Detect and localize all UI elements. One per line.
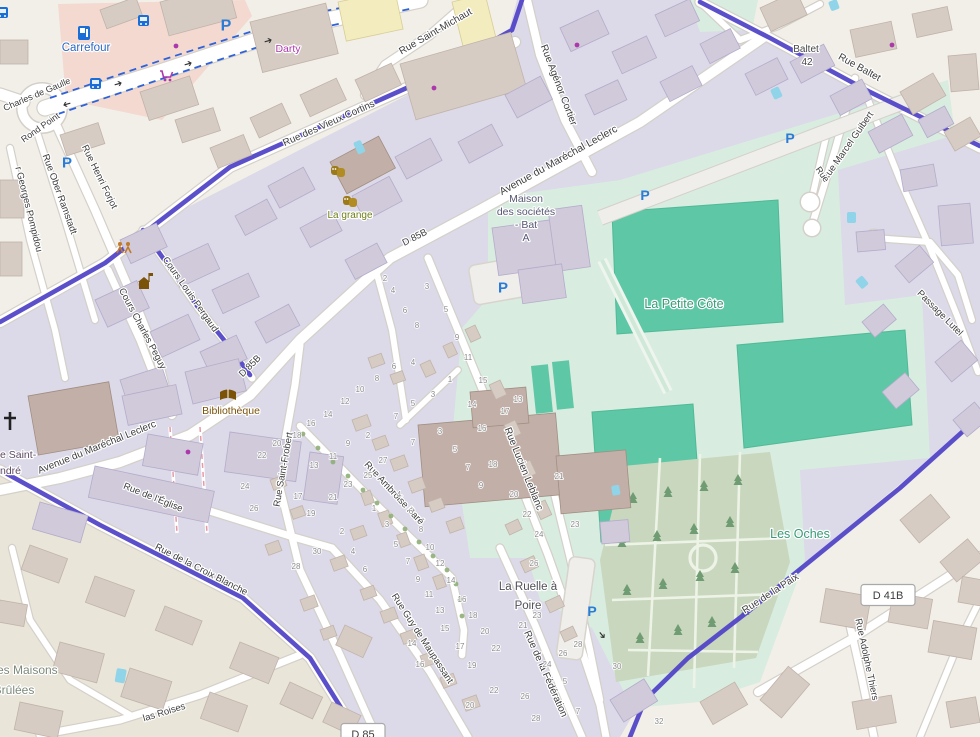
house-number: 3 bbox=[431, 390, 436, 399]
building bbox=[850, 21, 897, 57]
house-number: 20 bbox=[481, 627, 490, 636]
house-number: 22 bbox=[523, 510, 532, 519]
house-number: 30 bbox=[313, 547, 322, 556]
house-number: 5 bbox=[411, 399, 416, 408]
building bbox=[175, 108, 220, 143]
parking-icon: P bbox=[498, 279, 508, 296]
supermarket-cart-icon bbox=[169, 79, 172, 82]
house-number: 7 bbox=[406, 557, 411, 566]
parking-icon: P bbox=[587, 603, 596, 619]
house-number: 8 bbox=[419, 525, 424, 534]
house-number: 18 bbox=[469, 611, 478, 620]
place-label: Carrefour bbox=[62, 42, 111, 54]
house-number: 28 bbox=[532, 714, 541, 723]
house-number: 13 bbox=[514, 395, 523, 404]
house-number: 8 bbox=[375, 374, 380, 383]
supermarket-cart-icon bbox=[164, 79, 167, 82]
house-number: 3 bbox=[385, 520, 390, 529]
house-number: 16 bbox=[416, 660, 425, 669]
building bbox=[556, 450, 631, 514]
place-label: Les Maisons bbox=[0, 663, 58, 677]
house-number: 30 bbox=[613, 662, 622, 671]
house-number: 4 bbox=[391, 286, 396, 295]
house-number: 24 bbox=[543, 660, 552, 669]
road-ref-badge-text: D 41B bbox=[873, 590, 904, 602]
house-number: 24 bbox=[535, 530, 544, 539]
place-label: A bbox=[522, 232, 529, 244]
house-number: 17 bbox=[294, 492, 303, 501]
building bbox=[912, 7, 952, 38]
house-number: 7 bbox=[411, 438, 416, 447]
house-number: 4 bbox=[411, 358, 416, 367]
house-number: 5 bbox=[563, 677, 568, 686]
theatre-masks-icon bbox=[335, 168, 337, 170]
place-label: Brûlées bbox=[0, 683, 34, 697]
house-number: 12 bbox=[436, 559, 445, 568]
house-number: 8 bbox=[415, 321, 420, 330]
house-number: 32 bbox=[655, 717, 664, 726]
house-number: 10 bbox=[356, 385, 365, 394]
building bbox=[948, 54, 979, 92]
bus-stop-icon bbox=[145, 23, 147, 25]
shop-poi-dot bbox=[890, 43, 895, 48]
parking-icon: P bbox=[785, 130, 794, 146]
house-number: 28 bbox=[292, 562, 301, 571]
house-number: 4 bbox=[397, 490, 402, 499]
house-number: 2 bbox=[366, 431, 371, 440]
house-number: 14 bbox=[324, 410, 333, 419]
shop-poi-dot bbox=[174, 44, 179, 49]
building bbox=[250, 103, 291, 138]
house-number: 21 bbox=[519, 621, 528, 630]
tree-icon bbox=[316, 446, 321, 451]
building bbox=[338, 0, 403, 41]
building bbox=[946, 697, 980, 728]
building bbox=[303, 452, 343, 504]
house-number: 9 bbox=[416, 575, 421, 584]
theatre-masks-icon bbox=[332, 168, 334, 170]
house-number: 12 bbox=[341, 397, 350, 406]
house-number: 7 bbox=[576, 707, 581, 716]
house-number: 25 bbox=[364, 471, 373, 480]
tree-icon bbox=[431, 554, 436, 559]
house-number: 26 bbox=[521, 692, 530, 701]
house-number: 9 bbox=[455, 333, 460, 342]
house-number: 17 bbox=[501, 407, 510, 416]
house-number: 22 bbox=[492, 644, 501, 653]
house-number: 20 bbox=[510, 490, 519, 499]
house-number: 26 bbox=[250, 504, 259, 513]
place-label: La Ruelle à bbox=[499, 581, 558, 593]
house-number: 17 bbox=[456, 642, 465, 651]
osm-map[interactable]: ➔➔➔➔➔PPPPPPRue Saint-MichautRue des Vieu… bbox=[0, 0, 980, 737]
house-number: 21 bbox=[555, 472, 564, 481]
bus-stop-icon bbox=[97, 86, 99, 88]
culdesac bbox=[804, 220, 820, 236]
house-number: 22 bbox=[258, 451, 267, 460]
house-number: 16 bbox=[458, 595, 467, 604]
house-number: 23 bbox=[571, 520, 580, 529]
parking-icon: P bbox=[640, 187, 649, 203]
building bbox=[0, 242, 22, 276]
tree-icon bbox=[403, 527, 408, 532]
place-label: e Saint- bbox=[0, 449, 37, 461]
house-number: 5 bbox=[453, 445, 458, 454]
place-label: Les Oches bbox=[770, 527, 830, 541]
house-number: 20 bbox=[466, 701, 475, 710]
building bbox=[958, 576, 980, 608]
water-pool bbox=[828, 0, 840, 11]
culdesac bbox=[801, 193, 819, 211]
house-number: 2 bbox=[340, 527, 345, 536]
house-number: 19 bbox=[468, 661, 477, 670]
building bbox=[518, 264, 566, 304]
building bbox=[856, 230, 886, 252]
house-number: 4 bbox=[351, 547, 356, 556]
tree-icon bbox=[346, 474, 351, 479]
place-label: des sociétés bbox=[497, 206, 555, 218]
fuel-station-icon bbox=[86, 29, 88, 37]
house-number: 6 bbox=[363, 565, 368, 574]
house-number: 6 bbox=[403, 306, 408, 315]
house-number: 9 bbox=[479, 481, 484, 490]
bus-stop-icon bbox=[0, 9, 6, 13]
building bbox=[0, 600, 28, 627]
place-label: La Petite Côte bbox=[644, 297, 723, 311]
building bbox=[900, 494, 950, 543]
house-number: 5 bbox=[394, 540, 399, 549]
house-number: 20 bbox=[273, 439, 282, 448]
place-label: Darty bbox=[275, 43, 301, 55]
place-label: Baltet bbox=[793, 44, 819, 55]
house-number: 16 bbox=[307, 419, 316, 428]
tree-icon bbox=[460, 614, 465, 619]
map-canvas[interactable]: ➔➔➔➔➔PPPPPPRue Saint-MichautRue des Vieu… bbox=[0, 0, 980, 737]
parking-icon: P bbox=[221, 18, 232, 35]
theatre-masks-icon bbox=[337, 168, 345, 177]
house-number: 16 bbox=[478, 424, 487, 433]
house-number: 23 bbox=[344, 480, 353, 489]
house-number: 13 bbox=[310, 461, 319, 470]
road-ref-badge-text: D 85 bbox=[351, 729, 374, 737]
house-number: 10 bbox=[426, 543, 435, 552]
house-number: 15 bbox=[479, 376, 488, 385]
building bbox=[0, 40, 28, 64]
house-number: 19 bbox=[307, 509, 316, 518]
place-label: 42 bbox=[801, 57, 813, 68]
building bbox=[938, 203, 973, 246]
bus-stop-icon bbox=[140, 17, 147, 21]
tree-icon bbox=[445, 568, 450, 573]
place-label: Bibliothèque bbox=[202, 405, 260, 417]
house-number: 5 bbox=[444, 305, 449, 314]
house-number: 11 bbox=[329, 452, 338, 461]
shop-poi-dot bbox=[432, 86, 437, 91]
house-number: 14 bbox=[447, 576, 456, 585]
house-number: 7 bbox=[394, 412, 399, 421]
place-label: ndré bbox=[0, 465, 21, 477]
house-number: 26 bbox=[530, 559, 539, 568]
sports-pitch bbox=[612, 200, 783, 334]
bus-stop-icon bbox=[92, 86, 94, 88]
house-number: 26 bbox=[559, 649, 568, 658]
house-number: 3 bbox=[438, 427, 443, 436]
theatre-masks-icon bbox=[344, 198, 346, 200]
building bbox=[760, 666, 810, 718]
house-number: 7 bbox=[466, 463, 471, 472]
place-label: Maison bbox=[509, 193, 543, 205]
tree-icon bbox=[389, 514, 394, 519]
house-number: 13 bbox=[436, 606, 445, 615]
house-number: 28 bbox=[574, 640, 583, 649]
bus-stop-icon bbox=[4, 15, 6, 17]
house-number: 18 bbox=[293, 431, 302, 440]
house-number: 11 bbox=[464, 353, 473, 362]
theatre-masks-icon bbox=[347, 198, 349, 200]
fuel-station-icon bbox=[80, 28, 85, 33]
bus-stop-icon bbox=[140, 23, 142, 25]
bus-stop-icon bbox=[92, 80, 99, 84]
house-number: 11 bbox=[425, 590, 434, 599]
tree-icon bbox=[417, 540, 422, 545]
house-number: 1 bbox=[448, 375, 453, 384]
house-number: 15 bbox=[441, 624, 450, 633]
house-number: 1 bbox=[372, 504, 377, 513]
theatre-masks-icon bbox=[349, 198, 357, 207]
house-number: 9 bbox=[346, 439, 351, 448]
shop-poi-dot bbox=[575, 43, 580, 48]
house-number: 18 bbox=[489, 460, 498, 469]
building bbox=[300, 78, 346, 117]
house-number: 23 bbox=[533, 611, 542, 620]
shop-poi-dot bbox=[186, 450, 191, 455]
townhall-icon bbox=[149, 273, 153, 276]
house-number: 14 bbox=[468, 400, 477, 409]
building bbox=[600, 520, 630, 544]
house-number: 24 bbox=[241, 482, 250, 491]
house-number: 6 bbox=[392, 362, 397, 371]
house-number: 22 bbox=[490, 686, 499, 695]
house-number: 21 bbox=[329, 493, 338, 502]
house-number: 14 bbox=[408, 639, 417, 648]
tree-icon bbox=[361, 488, 366, 493]
house-number: 3 bbox=[425, 282, 430, 291]
place-label: La grange bbox=[327, 210, 372, 221]
place-label: - Bat bbox=[515, 219, 537, 231]
townhall-icon bbox=[139, 282, 149, 289]
house-number: 2 bbox=[383, 274, 388, 283]
parking-icon: P bbox=[62, 154, 72, 171]
water-pool bbox=[847, 212, 856, 223]
house-number: 27 bbox=[379, 456, 388, 465]
house-number: 6 bbox=[409, 507, 414, 516]
